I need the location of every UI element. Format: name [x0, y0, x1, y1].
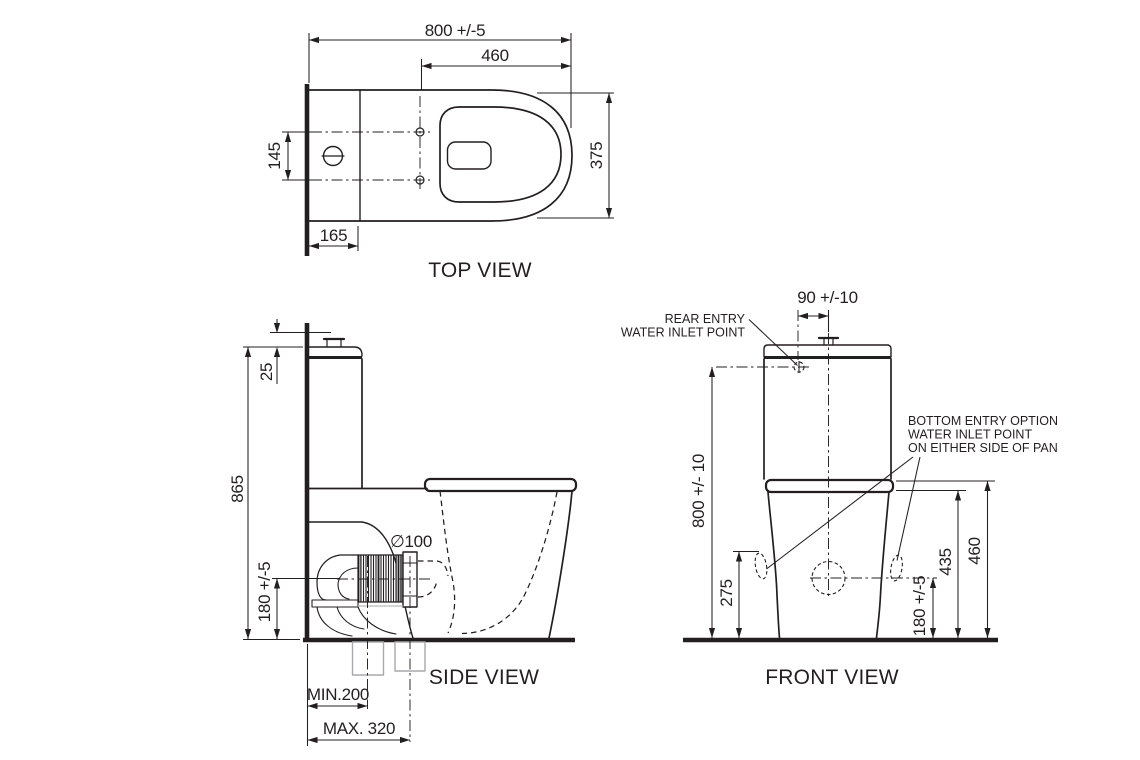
dim-label-setout-min: MIN.200 — [307, 685, 369, 704]
dim-label-setout-max: MAX. 320 — [323, 719, 395, 738]
arrowhead — [955, 628, 961, 638]
bowl-hidden-line — [440, 491, 455, 633]
dim-front-pan-rim-height: 435 — [896, 491, 966, 639]
arrowhead — [798, 313, 808, 319]
arrowhead — [984, 481, 990, 491]
arrowhead — [348, 243, 358, 249]
cistern-lid — [764, 345, 891, 357]
pan-left-side — [768, 492, 780, 638]
dim-label: 90 +/-10 — [797, 288, 857, 307]
dim-label: 460 — [481, 46, 508, 65]
note-line: ON EITHER SIDE OF PAN — [908, 441, 1058, 455]
arrowhead — [309, 37, 319, 43]
arrowhead — [422, 63, 432, 69]
dim-top-cistern-depth: 165 — [309, 226, 358, 251]
arrowhead — [274, 629, 280, 639]
arrowhead — [245, 629, 251, 639]
arrowhead — [736, 628, 742, 638]
arrowhead — [606, 208, 612, 218]
arrowhead — [930, 628, 936, 638]
dim-top-pan-width: 375 — [537, 93, 614, 218]
seat-hinge-plate — [448, 142, 492, 169]
dim-label: 180 +/-5 — [910, 576, 929, 636]
arrowhead — [736, 552, 742, 562]
arrowhead — [819, 313, 829, 319]
arrowhead — [274, 347, 280, 357]
arrowhead — [274, 579, 280, 589]
elbow-outer — [317, 555, 358, 600]
dim-top-overall-depth: 800 +/-5 — [309, 21, 571, 128]
elbow-inner — [338, 568, 358, 599]
floor-outlet-pipe-min — [353, 642, 384, 675]
arrowhead — [606, 93, 612, 103]
dim-front-outlet-centre-height: 180 +/-5 — [910, 576, 936, 638]
dim-side-lid-height: 25 — [257, 319, 331, 384]
note-line: BOTTOM ENTRY OPTION — [908, 414, 1058, 428]
leader-line — [767, 457, 914, 569]
bottom-entry-point-left — [753, 552, 768, 580]
arrowhead — [955, 491, 961, 501]
dim-front-inlet-height: 800 +/- 10 — [689, 367, 715, 638]
trap-hidden-line — [418, 561, 448, 576]
dim-label: 180 +/-5 — [255, 562, 274, 622]
dim-label: 800 +/- 10 — [689, 454, 708, 528]
seat-outline — [440, 107, 561, 202]
arrowhead — [400, 737, 410, 743]
dim-label: 165 — [320, 226, 347, 245]
dim-label: 865 — [228, 475, 247, 502]
front-view-title: FRONT VIEW — [765, 666, 898, 689]
arrowhead — [561, 63, 571, 69]
dim-top-seat-length: 460 — [422, 46, 572, 90]
cistern-lid — [309, 347, 362, 356]
arrowhead — [709, 367, 715, 377]
dim-label: 460 — [965, 537, 984, 564]
side-view: ∅100 25 865 180 +/-5 — [228, 319, 576, 746]
arrowhead — [285, 170, 291, 180]
note-line: WATER INLET POINT — [621, 326, 745, 340]
dim-top-fixing-centres: 145 — [265, 132, 311, 180]
dim-label: 275 — [717, 579, 736, 606]
toilet-dimension-drawing: 800 +/-5 460 375 145 — [0, 0, 1140, 760]
dim-label: 375 — [587, 142, 606, 169]
dim-label: 435 — [936, 548, 955, 575]
arrowhead — [984, 628, 990, 638]
dim-front-inlet-offset: 90 +/-10 — [797, 288, 857, 360]
trap-hidden-line — [418, 581, 437, 597]
arrowhead — [709, 628, 715, 638]
outlet-pipe-assembly — [312, 552, 433, 742]
elbow-bend — [358, 607, 396, 634]
dim-label-outlet-diameter: ∅100 — [390, 532, 432, 551]
leader-line — [897, 457, 920, 561]
front-view: 90 +/-10 REAR ENTRY WATER INLET POINT BO… — [621, 288, 1058, 689]
bowl-hidden-line — [462, 492, 557, 634]
arrowhead — [274, 323, 280, 333]
dim-label: 145 — [265, 142, 284, 169]
dim-label: 800 +/-5 — [425, 21, 485, 40]
seat-front-profile — [766, 480, 893, 492]
note-line: REAR ENTRY — [665, 312, 746, 326]
dim-front-side-inlet-height: 275 — [717, 552, 759, 639]
top-view-title: TOP VIEW — [428, 259, 532, 282]
pan-right-side — [877, 492, 890, 638]
seat-profile — [425, 479, 576, 491]
arrowhead — [561, 37, 571, 43]
arrowhead — [309, 243, 319, 249]
top-view: 800 +/-5 460 375 145 — [265, 21, 614, 282]
arrowhead — [930, 578, 936, 588]
elbow-collar — [312, 600, 358, 607]
side-view-title: SIDE VIEW — [429, 666, 539, 689]
arrowhead — [285, 132, 291, 142]
arrowhead — [308, 737, 318, 743]
technical-drawing-page: 800 +/-5 460 375 145 — [0, 0, 1140, 760]
note-line: WATER INLET POINT — [908, 428, 1032, 442]
arrowhead — [245, 347, 251, 357]
pipe-shading — [397, 555, 404, 602]
dim-label: 25 — [257, 363, 276, 381]
